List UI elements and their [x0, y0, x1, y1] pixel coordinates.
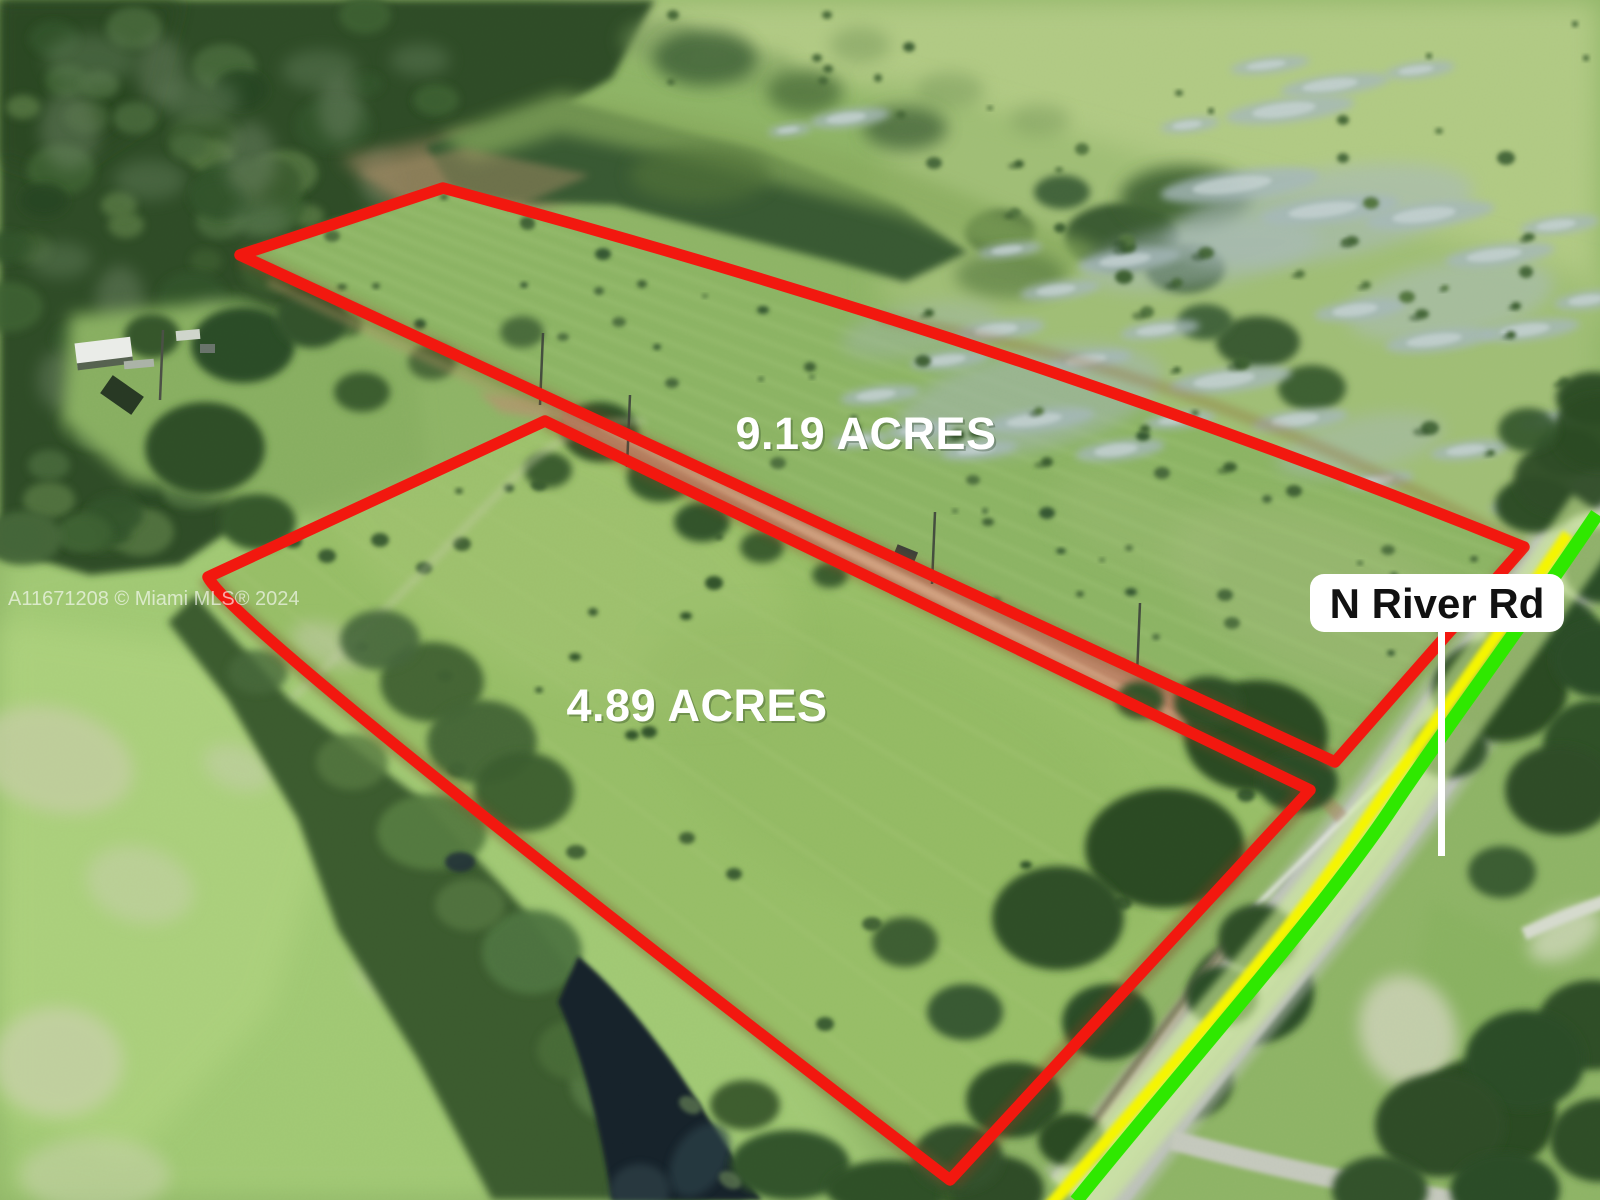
svg-text:N River Rd: N River Rd	[1330, 580, 1545, 627]
svg-text:A11671208 © Miami MLS® 2024: A11671208 © Miami MLS® 2024	[8, 588, 299, 610]
svg-text:4.89 ACRES: 4.89 ACRES	[567, 680, 828, 731]
svg-text:9.19 ACRES: 9.19 ACRES	[736, 408, 997, 459]
